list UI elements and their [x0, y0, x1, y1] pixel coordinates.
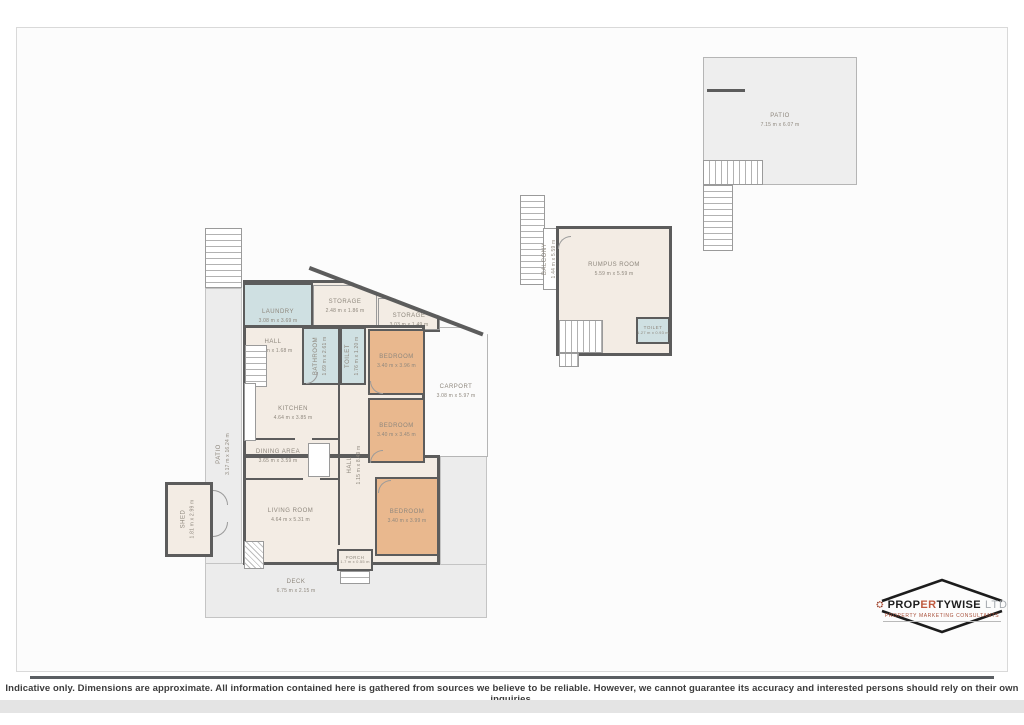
rumpus-label: RUMPUS ROOM 5.59 m x 5.59 m	[560, 261, 668, 278]
starburst-icon	[876, 597, 884, 612]
living-room-label: LIVING ROOM 4.64 m x 5.31 m	[243, 507, 338, 524]
patio-stairs-vertical	[703, 185, 733, 251]
brand-suffix: LTD	[985, 599, 1008, 611]
patio-railing	[707, 89, 745, 92]
internal-stairs	[245, 345, 267, 387]
shed-label: SHED 1.81 m x 2.99 m	[174, 482, 204, 557]
porch-label: PORCH 1.7 m x 0.55 m	[339, 551, 371, 569]
dining-cabinet	[308, 443, 330, 477]
room-porch: PORCH 1.7 m x 0.55 m	[337, 549, 373, 571]
toilet-upper-label: TOILET 1.27 m x 0.93 m	[638, 319, 668, 342]
hall-2-label: HALL 1.15 m x 8.49 m	[345, 405, 365, 525]
plan-sheet	[16, 27, 1008, 672]
carport-label: CARPORT 3.08 m x 5.97 m	[425, 328, 487, 456]
dining-living-wall	[245, 478, 303, 480]
brand-tagline: PROPERTY MARKETING CONSULTANTS	[876, 613, 1008, 619]
rumpus-stairs-lower	[559, 353, 579, 367]
toilet-label: TOILET 1.76 m x 1.20 m	[340, 327, 366, 385]
rumpus-stairs	[559, 320, 603, 353]
kitchen-counter	[244, 383, 256, 441]
footer-rule	[30, 676, 994, 679]
patio-stairs-horizontal	[703, 160, 763, 185]
exterior-stairs-top-left	[205, 228, 242, 288]
deck-label: DECK 6.75 m x 2.15 m	[246, 578, 346, 595]
side-patio-label: PATIO 3.17 m x 16.24 m	[209, 409, 239, 499]
kitchen-dining-wall-2	[312, 438, 338, 440]
floorplan-page: CARPORT 3.08 m x 5.97 m LAUNDRY 3.08 m x…	[0, 0, 1024, 725]
dining-area-label: DINING AREA 3.65 m x 3.59 m	[238, 448, 318, 465]
kitchen-label: KITCHEN 4.64 m x 3.85 m	[248, 405, 338, 422]
logo-text-row: PROPERTYWISE LTD	[876, 597, 1008, 612]
rear-yard-area	[440, 455, 487, 565]
dining-living-wall-2	[320, 478, 338, 480]
bottom-strip	[0, 700, 1024, 713]
room-toilet-upper: TOILET 1.27 m x 0.93 m	[636, 317, 670, 344]
brand-name: PROPERTYWISE	[888, 599, 981, 611]
room-carport: CARPORT 3.08 m x 5.97 m	[424, 327, 488, 457]
company-logo: PROPERTYWISE LTD PROPERTY MARKETING CONS…	[876, 574, 1008, 638]
hall-partition-wall	[338, 385, 340, 545]
fireplace	[244, 541, 264, 569]
